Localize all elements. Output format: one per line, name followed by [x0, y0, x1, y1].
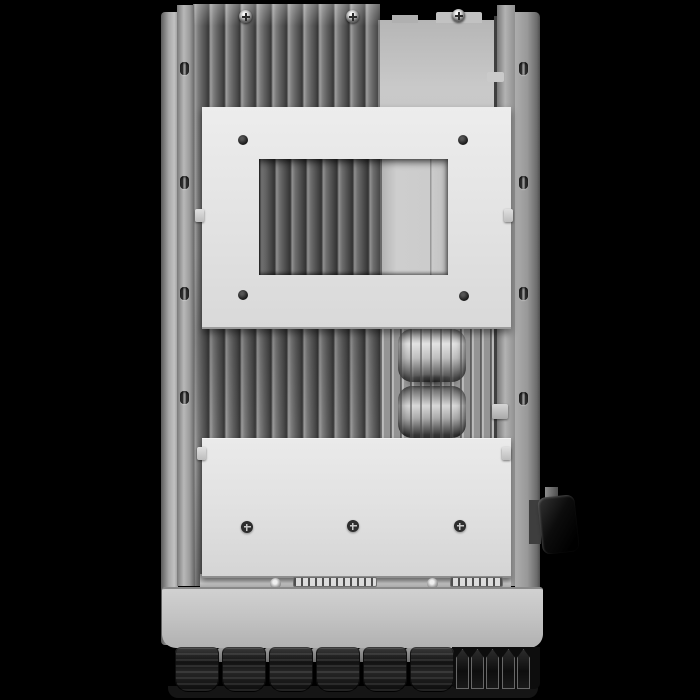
- right-rail-mounting-hole: [519, 392, 528, 405]
- right-outer-flange: [515, 12, 540, 644]
- cover-philips-screw: [347, 520, 359, 532]
- left-rail-mounting-hole: [180, 287, 189, 300]
- heatsink-top-screw: [452, 9, 465, 22]
- cover-side-clip: [502, 447, 511, 460]
- left-rail-mounting-hole: [180, 176, 189, 189]
- cover-philips-screw: [454, 520, 466, 532]
- cover-side-clip: [197, 447, 206, 460]
- cutout-inner-shadow: [259, 159, 448, 275]
- panel-top-tab: [392, 15, 418, 23]
- cable-gland: [410, 647, 454, 692]
- terminal-block: [293, 577, 377, 587]
- right-rail-mounting-hole: [519, 176, 528, 189]
- left-rail-mounting-hole: [180, 391, 189, 404]
- heatsink-top-screw: [346, 10, 359, 23]
- fin-overlay-stripes: [380, 326, 494, 439]
- bracket-screw-hole: [238, 290, 248, 300]
- right-rail-tab: [487, 72, 504, 82]
- inverter-rear-photo: [0, 0, 700, 700]
- bracket-screw-hole: [459, 291, 469, 301]
- bracket-screw-hole: [238, 135, 248, 145]
- right-rail-mounting-hole: [519, 62, 528, 75]
- lower-cover-plate: [202, 438, 511, 578]
- cable-gland: [316, 647, 360, 692]
- cable-gland: [175, 647, 219, 692]
- right-rail-mounting-hole: [519, 287, 528, 300]
- heatsink-top-screw: [239, 10, 252, 23]
- cable-gland: [222, 647, 266, 692]
- terminal-block: [450, 577, 503, 587]
- left-enclosure-edge: [161, 12, 178, 645]
- cable-gland: [363, 647, 407, 692]
- front-face-bottom: [162, 587, 543, 648]
- cover-philips-screw: [241, 521, 253, 533]
- dc-disconnect-switch: [537, 494, 580, 555]
- bracket-screw-hole: [458, 135, 468, 145]
- right-rail-clip: [492, 404, 508, 419]
- left-rail-mounting-hole: [180, 62, 189, 75]
- bracket-side-clip: [504, 209, 513, 222]
- bracket-side-clip: [195, 209, 204, 222]
- cable-gland: [269, 647, 313, 692]
